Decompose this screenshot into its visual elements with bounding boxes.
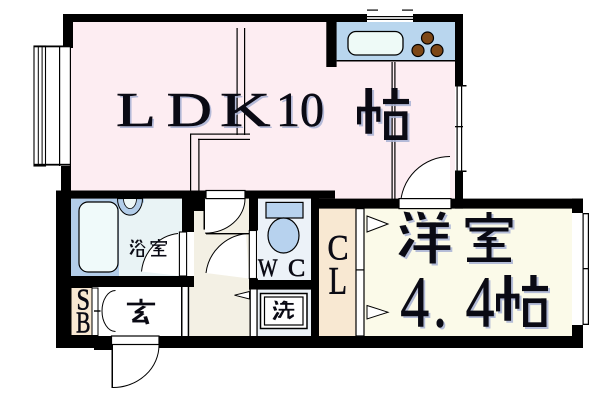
svg-text:L: L	[329, 260, 347, 303]
svg-text:L: L	[116, 84, 156, 137]
svg-text:4: 4	[400, 262, 429, 343]
svg-text:K: K	[220, 84, 271, 137]
svg-text:4: 4	[466, 262, 495, 343]
svg-text:10: 10	[276, 84, 324, 137]
svg-text:W: W	[258, 255, 278, 282]
svg-text:D: D	[167, 84, 212, 137]
svg-text:.: .	[433, 262, 447, 343]
svg-text:B: B	[76, 305, 91, 340]
svg-text:C: C	[288, 255, 305, 282]
